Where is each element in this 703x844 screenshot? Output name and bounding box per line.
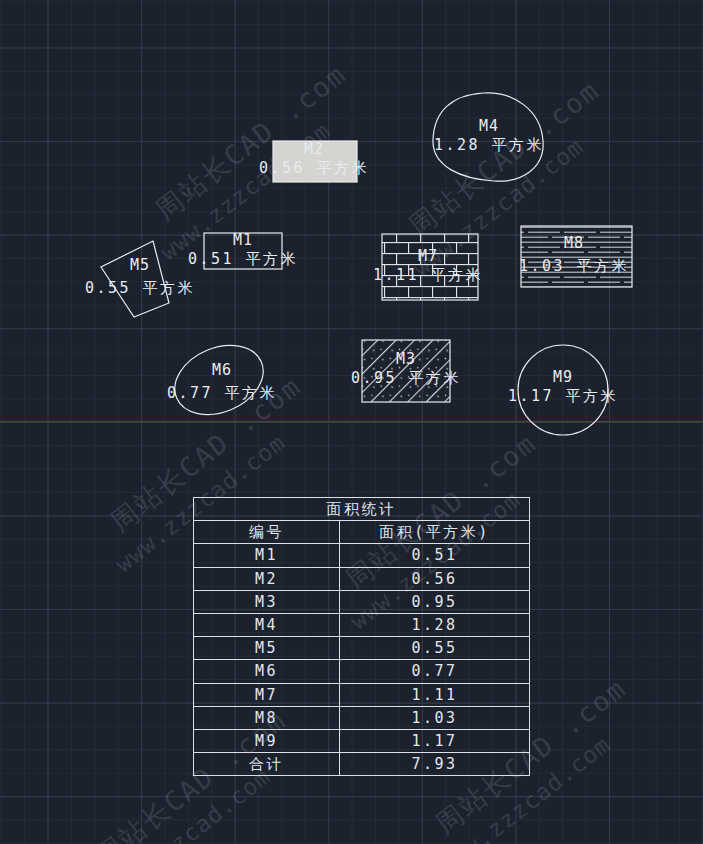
shape-area: 0.51 平方米 (188, 250, 298, 269)
table-title: 面积统计 (194, 498, 530, 521)
shape-area: 0.77 平方米 (167, 384, 277, 403)
shape-label-m1: M1 0.51 平方米 (188, 231, 298, 269)
cell-id: M8 (194, 706, 340, 729)
table-row: M5 0.55 (194, 637, 530, 660)
cell-area: 0.77 (340, 660, 530, 683)
shape-label-m2: M2 0.56 平方米 (259, 140, 369, 178)
cell-id: M4 (194, 613, 340, 636)
shape-label-m6: M6 0.77 平方米 (167, 361, 277, 403)
shape-id: M3 (351, 350, 461, 369)
cell-total-value: 7.93 (340, 753, 530, 776)
shape-area: 0.95 平方米 (351, 369, 461, 388)
table-row: M6 0.77 (194, 660, 530, 683)
drawing-canvas[interactable]: M1 0.51 平方米 M2 0.56 平方米 M3 0.95 平方米 M4 1… (0, 0, 703, 844)
shape-label-m8: M8 1.03 平方米 (519, 234, 629, 276)
cell-area: 1.17 (340, 729, 530, 752)
table-row: M1 0.51 (194, 544, 530, 567)
shape-area: 0.55 平方米 (85, 279, 195, 298)
shape-id: M7 (373, 247, 483, 266)
shape-id: M9 (508, 368, 618, 387)
table-row: M9 1.17 (194, 729, 530, 752)
shape-area: 1.11 平方米 (373, 266, 483, 285)
shape-label-m4: M4 1.28 平方米 (434, 117, 544, 155)
shape-area: 1.28 平方米 (434, 136, 544, 155)
cell-area: 0.95 (340, 590, 530, 613)
shape-id: M4 (434, 117, 544, 136)
shape-id: M6 (167, 361, 277, 380)
table-title-row: 面积统计 (194, 498, 530, 521)
shape-area: 0.56 平方米 (259, 159, 369, 178)
cell-area: 1.28 (340, 613, 530, 636)
column-header-id: 编号 (194, 521, 340, 544)
shape-label-m7: M7 1.11 平方米 (373, 247, 483, 285)
table-total-row: 合计 7.93 (194, 753, 530, 776)
cell-id: M1 (194, 544, 340, 567)
cell-area: 0.56 (340, 567, 530, 590)
shape-area: 1.03 平方米 (519, 257, 629, 276)
cell-area: 1.11 (340, 683, 530, 706)
cell-area: 0.51 (340, 544, 530, 567)
cell-area: 1.03 (340, 706, 530, 729)
shape-label-m3: M3 0.95 平方米 (351, 350, 461, 388)
cell-id: M5 (194, 637, 340, 660)
cell-id: M3 (194, 590, 340, 613)
shape-label-m5: M5 0.55 平方米 (85, 256, 195, 298)
shape-id: M8 (519, 234, 629, 253)
column-header-area: 面积(平方米) (340, 521, 530, 544)
shape-label-m9: M9 1.17 平方米 (508, 368, 618, 406)
table-row: M8 1.03 (194, 706, 530, 729)
cell-id: M7 (194, 683, 340, 706)
table-row: M3 0.95 (194, 590, 530, 613)
area-statistics-table[interactable]: 面积统计 编号 面积(平方米) M1 0.51 M2 0.56 M3 0.95 … (193, 497, 530, 776)
cell-id: M2 (194, 567, 340, 590)
table-header-row: 编号 面积(平方米) (194, 521, 530, 544)
table-row: M2 0.56 (194, 567, 530, 590)
cell-total-label: 合计 (194, 753, 340, 776)
cell-id: M6 (194, 660, 340, 683)
shape-id: M1 (188, 231, 298, 250)
cell-area: 0.55 (340, 637, 530, 660)
table-row: M7 1.11 (194, 683, 530, 706)
table-row: M4 1.28 (194, 613, 530, 636)
shape-id: M5 (85, 256, 195, 275)
shape-area: 1.17 平方米 (508, 387, 618, 406)
shape-id: M2 (259, 140, 369, 159)
cell-id: M9 (194, 729, 340, 752)
